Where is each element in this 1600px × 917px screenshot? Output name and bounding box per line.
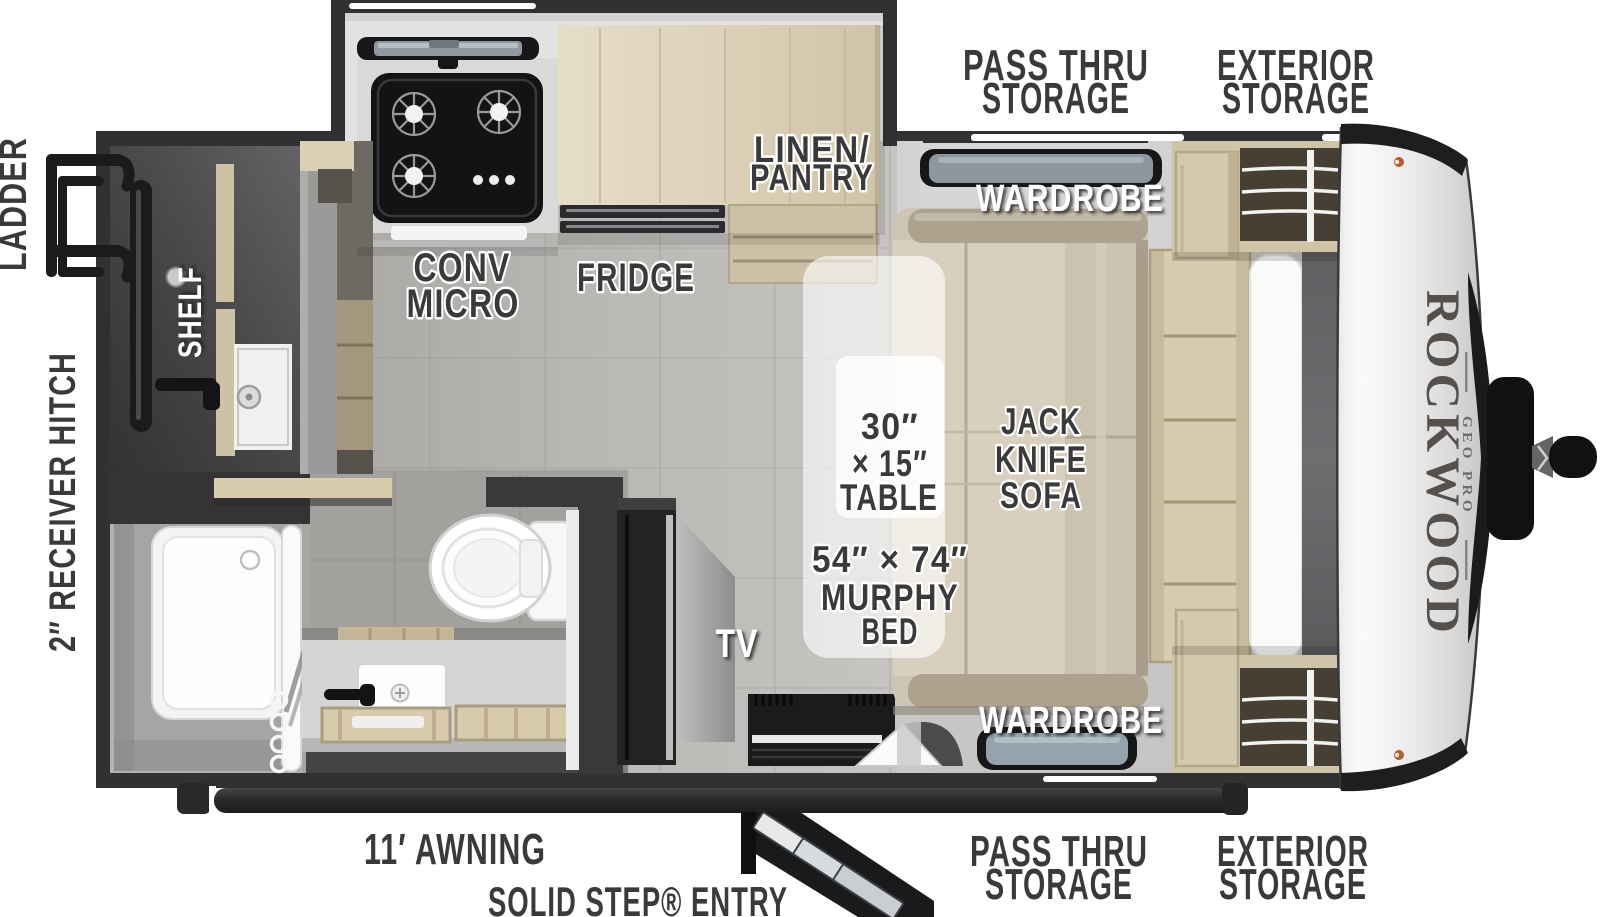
svg-text:TABLE: TABLE (840, 477, 938, 518)
svg-text:STORAGE: STORAGE (985, 860, 1133, 909)
svg-text:WARDROBE: WARDROBE (979, 700, 1163, 742)
svg-text:PANTRY: PANTRY (750, 157, 874, 198)
svg-text:STORAGE: STORAGE (1219, 860, 1367, 909)
svg-text:JACK: JACK (1001, 401, 1081, 442)
svg-text:11′ AWNING: 11′ AWNING (364, 825, 546, 874)
svg-text:2″ RECEIVER HITCH: 2″ RECEIVER HITCH (42, 352, 83, 652)
svg-text:54″ × 74″: 54″ × 74″ (812, 539, 968, 580)
svg-text:MICRO: MICRO (407, 282, 520, 326)
svg-text:WARDROBE: WARDROBE (976, 178, 1164, 220)
svg-text:SHELF: SHELF (172, 266, 208, 358)
svg-text:GEO PRO: GEO PRO (1459, 416, 1474, 516)
svg-text:FRIDGE: FRIDGE (577, 256, 695, 300)
svg-text:TV: TV (716, 622, 759, 666)
svg-text:STORAGE: STORAGE (982, 74, 1130, 123)
svg-text:STORAGE: STORAGE (1222, 74, 1370, 123)
svg-text:LADDER: LADDER (0, 137, 35, 271)
svg-text:30″: 30″ (861, 406, 919, 447)
svg-text:SOFA: SOFA (1000, 475, 1082, 516)
svg-text:KNIFE: KNIFE (995, 439, 1087, 480)
svg-text:BED: BED (862, 611, 919, 652)
svg-text:SOLID STEP® ENTRY: SOLID STEP® ENTRY (488, 878, 788, 917)
